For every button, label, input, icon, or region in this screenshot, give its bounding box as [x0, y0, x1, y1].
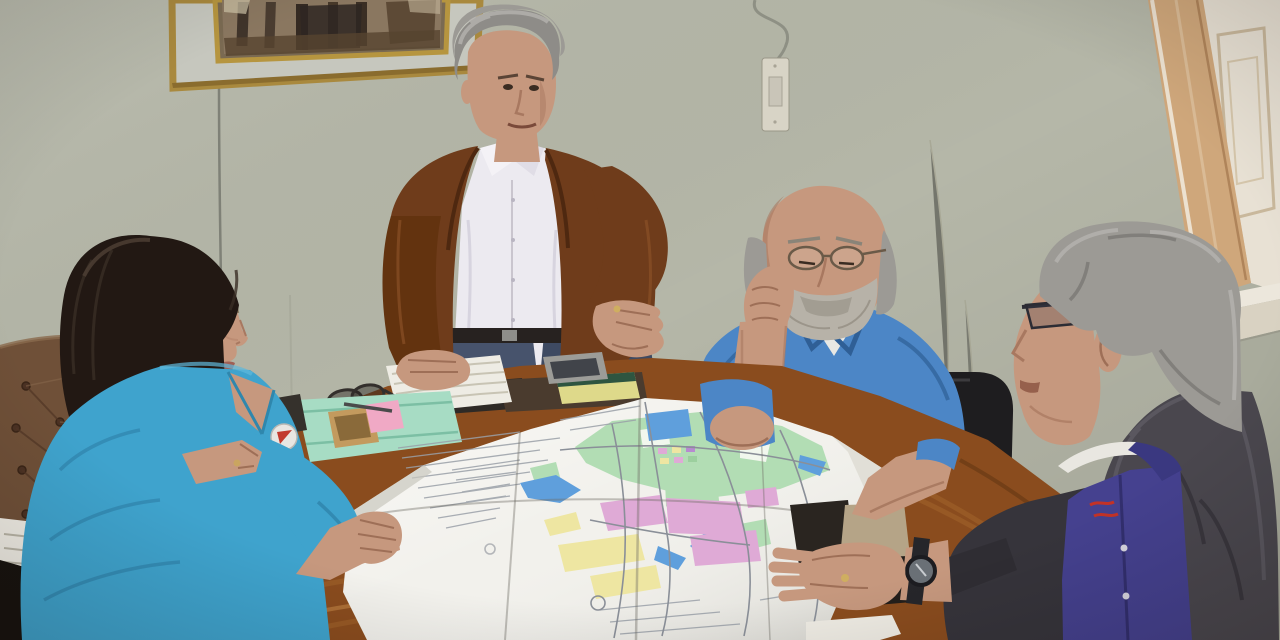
vignette: [0, 0, 1280, 640]
photo-meeting-over-map: [0, 0, 1280, 640]
photo-canvas: [0, 0, 1280, 640]
